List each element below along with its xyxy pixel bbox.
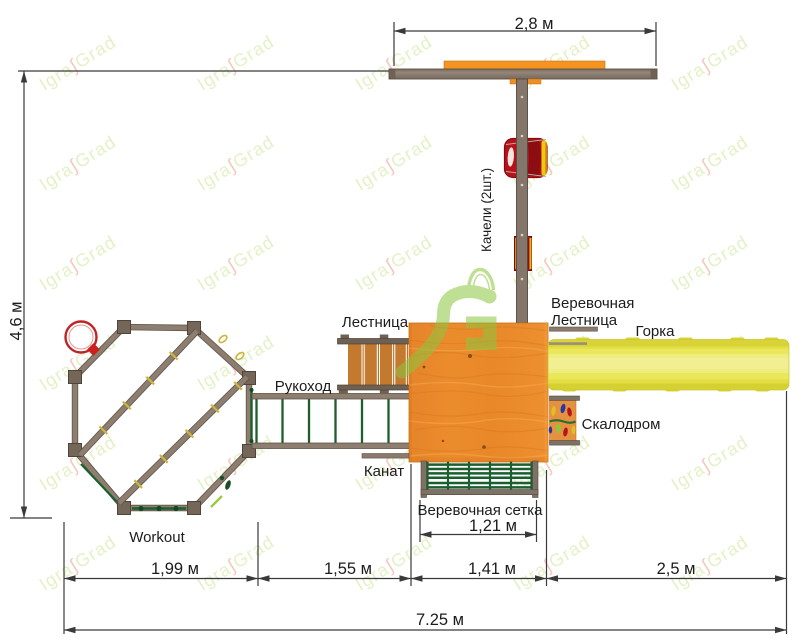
svg-text:1,99 м: 1,99 м — [151, 560, 199, 578]
svg-text:Канат: Канат — [364, 463, 404, 480]
svg-text:Веревочная: Веревочная — [551, 295, 634, 312]
svg-text:Качели (2шт.): Качели (2шт.) — [479, 168, 494, 252]
svg-text:2,5 м: 2,5 м — [657, 560, 696, 578]
svg-text:4,6 м: 4,6 м — [8, 302, 26, 341]
svg-text:Скалодром: Скалодром — [582, 416, 661, 433]
svg-text:7.25 м: 7.25 м — [416, 611, 464, 629]
svg-text:Рукоход: Рукоход — [275, 378, 332, 395]
svg-text:1,55 м: 1,55 м — [324, 560, 372, 578]
svg-text:1,21 м: 1,21 м — [469, 517, 517, 535]
svg-text:2,8 м: 2,8 м — [515, 15, 554, 33]
svg-text:Лестница: Лестница — [551, 312, 618, 329]
svg-text:Горка: Горка — [635, 323, 675, 340]
svg-text:Workout: Workout — [129, 529, 185, 546]
svg-text:Лестница: Лестница — [342, 314, 409, 331]
svg-text:Веревочная сетка: Веревочная сетка — [417, 502, 543, 519]
svg-text:1,41 м: 1,41 м — [468, 560, 516, 578]
